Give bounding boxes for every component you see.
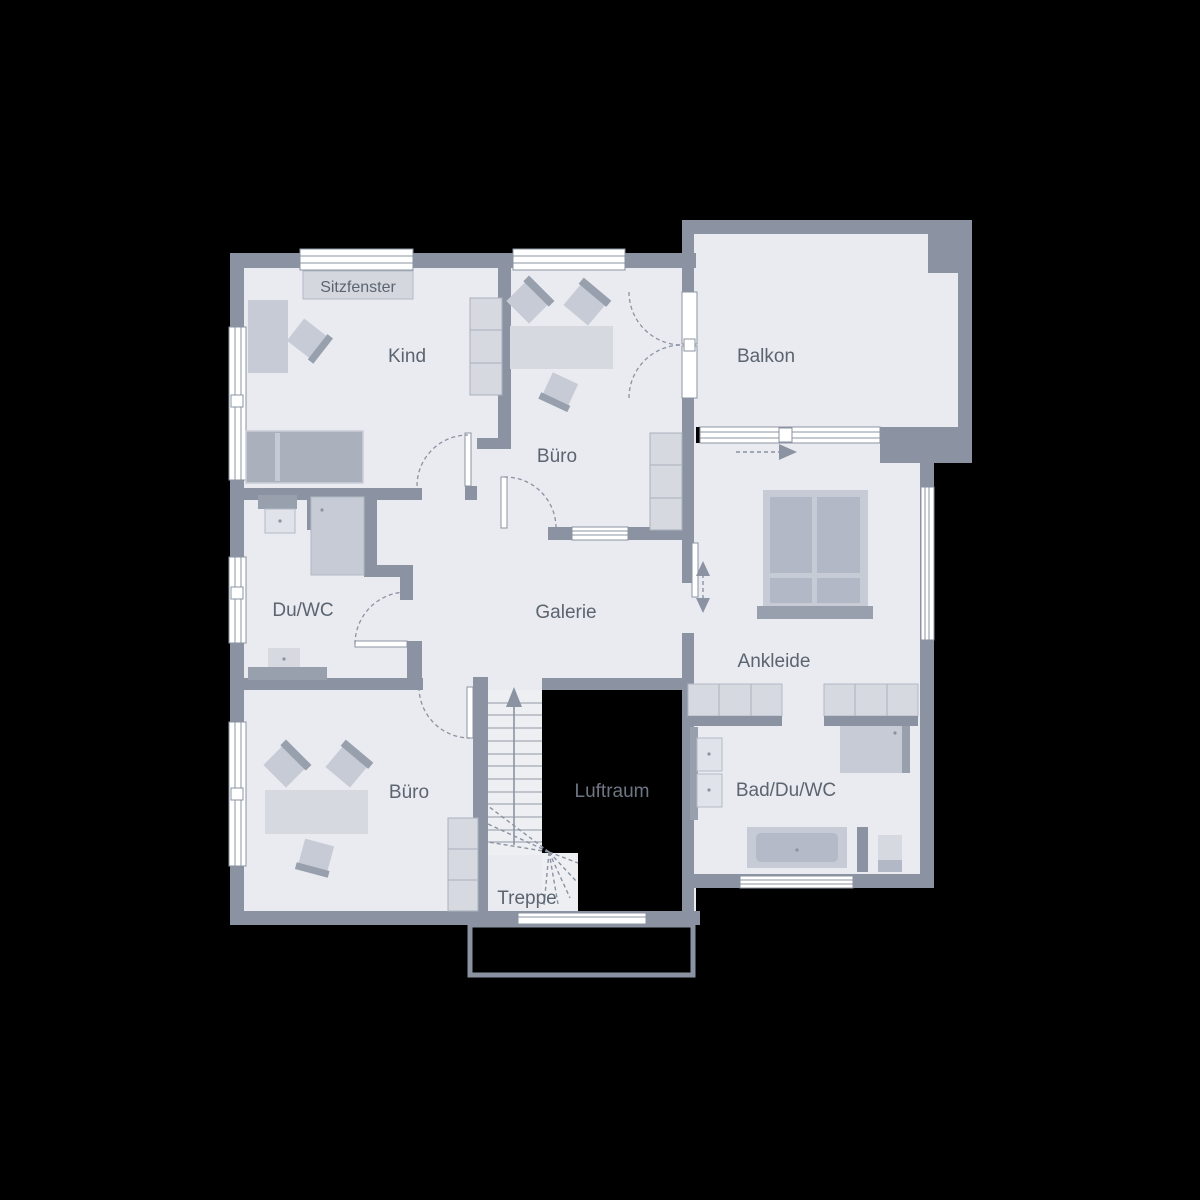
room-label-luftraum: Luftraum [575,781,650,802]
buero-bottom-desk [265,790,368,834]
wall-bath-stub [857,827,868,872]
room-label-buero-top: Büro [537,446,577,467]
room-label-galerie: Galerie [535,602,596,623]
kind-bed [246,431,363,483]
window-balcony-door [700,427,880,443]
window-handle-icon [231,587,243,599]
window-duwc-left [229,557,246,643]
bad-washbasin [697,774,722,807]
bad-shower [840,726,910,773]
wall-center-upper [682,220,694,292]
wall-balcony-right [958,234,972,443]
wall-duwc-door-stub [400,565,413,600]
window-handle-icon [779,428,792,442]
wall-door-stub [465,486,477,500]
sitzfenster-label: Sitzfenster [320,279,396,296]
window-bad-bottom [740,876,853,888]
wall-stair-top [542,678,682,690]
window-handle-icon [231,788,243,800]
bad-washbasin [697,738,722,771]
window-interior-galerie [572,527,628,540]
ankleide-closets-right [824,684,918,726]
room-label-ankleide: Ankleide [738,651,811,672]
kind-dresser [248,300,288,373]
floorplan-drawing: Sitzfenster Kind Büro Balkon Du/WC Galer… [0,0,1200,1200]
room-label-balkon: Balkon [737,346,795,367]
wall-step [477,438,511,449]
kind-wardrobe [470,298,502,395]
buero-top-shelf [650,433,682,530]
buero-top-desk [510,326,613,369]
room-label-bad: Bad/Du/WC [736,780,836,801]
window-ankleide-right [921,487,934,640]
ankleide-unit [757,490,873,619]
room-label-treppe: Treppe [497,888,557,909]
room-label-buero-bottom: Büro [389,782,429,803]
window-buero2-left [229,722,246,866]
room-floor-balcony [694,234,928,427]
duwc-shower [311,497,364,575]
wall-galerie-top-left [548,527,572,540]
room-label-duwc: Du/WC [272,600,333,621]
room-label-kind: Kind [388,346,426,367]
ankleide-closets-left [688,684,782,726]
window-bottom [518,913,646,924]
door-handle-icon [684,339,695,351]
wall-balcony-bottom-right [880,427,972,463]
window-buero-top [513,249,625,270]
wall-duwc-right-upper [364,493,377,577]
floorplan-canvas: Sitzfenster Kind Büro Balkon Du/WC Galer… [0,0,1200,1200]
window-kind-top [300,249,413,270]
window-kind-left [229,327,246,480]
window-handle-icon [231,395,243,407]
room-floor-balcony-edge [928,273,958,427]
canopy-outline [470,925,693,975]
bad-bathtub [747,827,847,868]
buero-bottom-shelf [448,818,478,911]
bad-toilet [878,835,902,872]
